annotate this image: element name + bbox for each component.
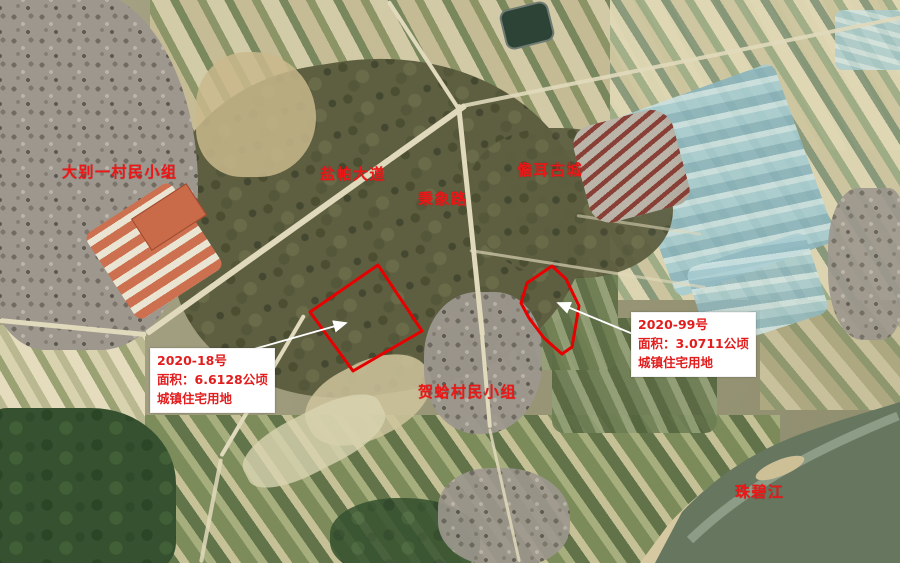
callout-parcel-area: 面积：6.6128公顷 [157, 371, 268, 390]
label-village-center: 贺蛤村民小组 [418, 381, 517, 402]
callout-parcel-number: 2020-99号 [638, 316, 749, 335]
village-cluster-right [828, 188, 900, 340]
forest-bottom-left [0, 408, 176, 563]
village-cluster-bottom [438, 468, 570, 563]
bare-soil-patch [196, 52, 316, 177]
label-road: 秉象路 [418, 188, 468, 209]
callout-parcel-landuse: 城镇住宅用地 [638, 354, 749, 373]
label-avenue: 盐帕大道 [320, 163, 386, 184]
label-village-top-left: 大别一村民小组 [62, 161, 178, 182]
callout-parcel-landuse: 城镇住宅用地 [157, 390, 268, 409]
label-ancient-town: 儋耳古城 [517, 159, 583, 180]
parcel-callout-2020-99: 2020-99号 面积：3.0711公顷 城镇住宅用地 [631, 312, 756, 377]
parcel-callout-2020-18: 2020-18号 面积：6.6128公顷 城镇住宅用地 [150, 348, 275, 413]
satellite-map: 大别一村民小组 盐帕大道 秉象路 儋耳古城 贺蛤村民小组 珠碧江 2020-18… [0, 0, 900, 563]
label-river: 珠碧江 [735, 481, 785, 502]
callout-parcel-number: 2020-18号 [157, 352, 268, 371]
callout-parcel-area: 面积：3.0711公顷 [638, 335, 749, 354]
